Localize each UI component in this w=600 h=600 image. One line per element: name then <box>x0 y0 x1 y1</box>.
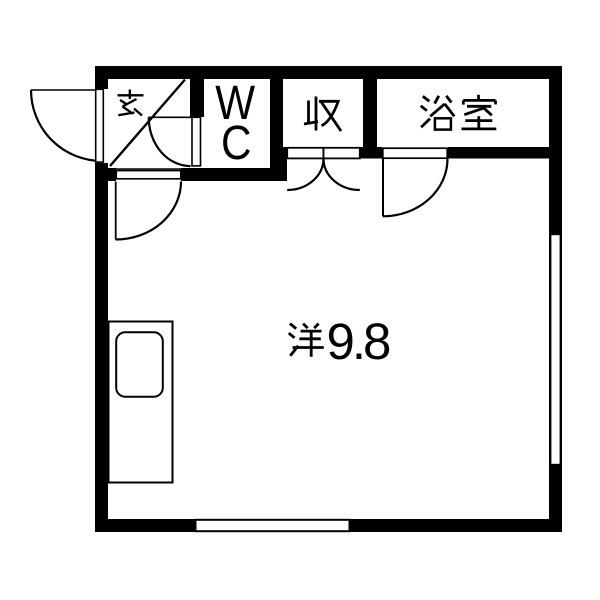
svg-text:9.8: 9.8 <box>327 313 391 370</box>
svg-text:C: C <box>221 115 252 169</box>
